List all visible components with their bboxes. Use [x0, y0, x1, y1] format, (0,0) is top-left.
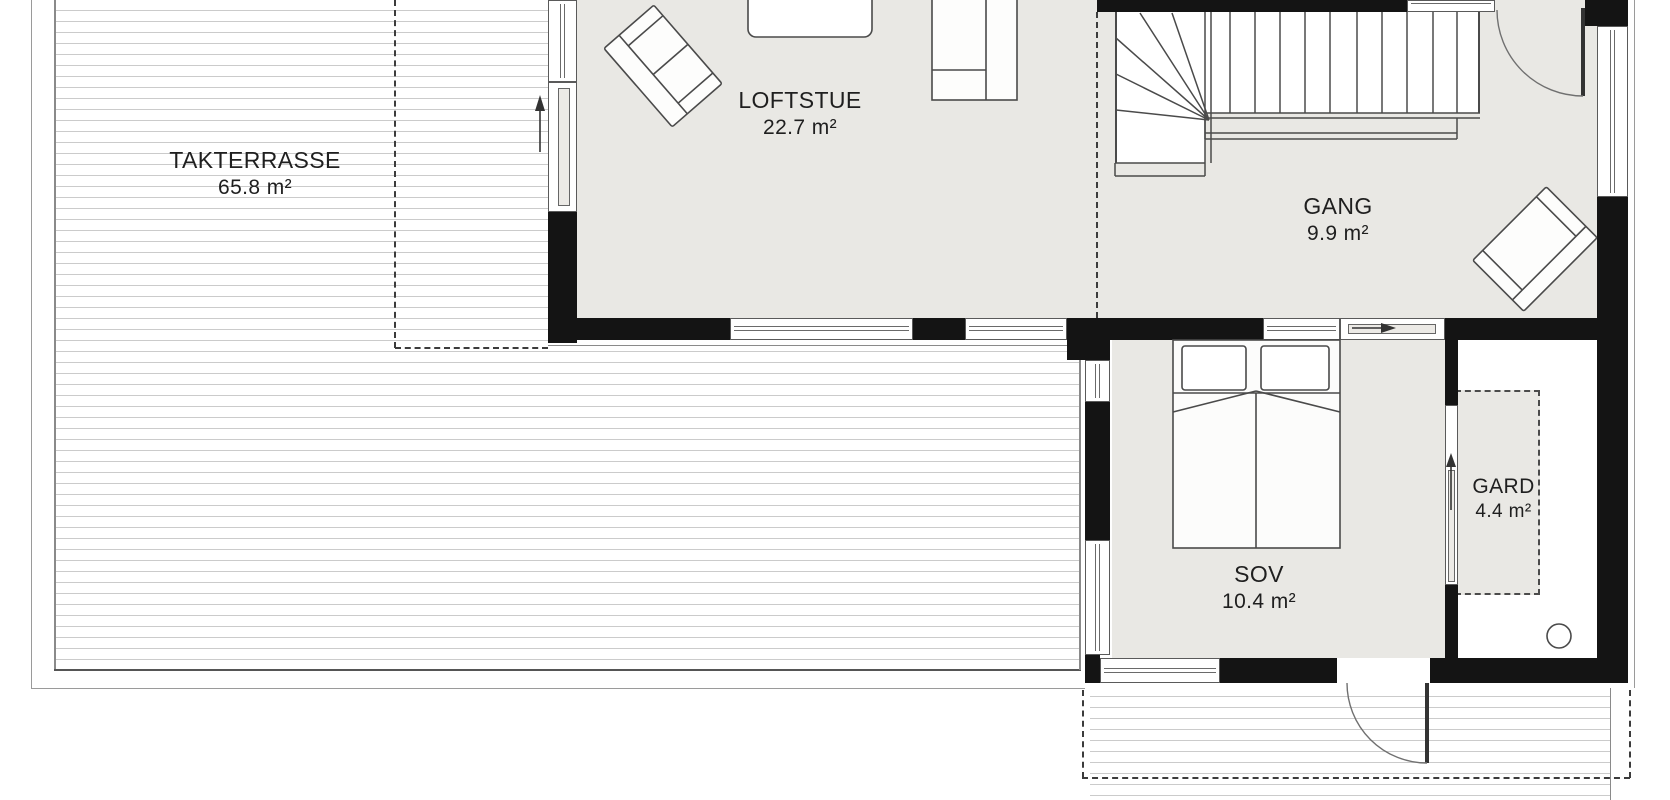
- window-sov-left-2: [1085, 540, 1110, 655]
- glass: [1411, 3, 1491, 4]
- room-area: 9.9 m²: [1238, 221, 1438, 247]
- wall-face-line: [548, 345, 1097, 346]
- room-label-gard: GARD 4.4 m²: [1446, 474, 1561, 524]
- wall-top-bar: [1097, 0, 1407, 12]
- wall-bottom-seg2: [913, 318, 965, 340]
- floor-plan: TAKTERRASSE 65.8 m² LOFTSTUE 22.7 m² GAN…: [0, 0, 1670, 800]
- wall-sov-top: [1110, 318, 1263, 340]
- room-label-sov: SOV 10.4 m²: [1159, 560, 1359, 615]
- window-sov-top: [1263, 318, 1340, 340]
- balcony-dash-right: [1629, 690, 1631, 778]
- glass: [1610, 30, 1615, 193]
- room-area: 10.4 m²: [1159, 589, 1359, 615]
- terrace-edge-left: [54, 0, 56, 670]
- glass: [1095, 544, 1100, 651]
- balcony-dash-bottom: [1082, 777, 1630, 779]
- wall-bottom-gard: [1430, 658, 1628, 683]
- window-loftstue-south-1: [730, 318, 913, 340]
- room-name: GANG: [1238, 192, 1438, 221]
- wall-sov-left-bottom: [1085, 655, 1100, 683]
- wall-bottom-seg1: [548, 318, 730, 340]
- wall-bottom-sov: [1220, 658, 1337, 683]
- room-label-gang: GANG 9.9 m²: [1238, 192, 1438, 247]
- outer-line-bottom: [31, 688, 1085, 689]
- wall-gard-left-bottom: [1445, 585, 1458, 683]
- room-name: SOV: [1159, 560, 1359, 589]
- terrace-edge-right: [1079, 347, 1081, 670]
- slider-sov-top: [1340, 318, 1445, 340]
- wall-gang-south-right: [1445, 318, 1597, 340]
- outer-line-left: [31, 0, 32, 688]
- glass: [560, 4, 565, 78]
- wall-corner-sov: [1067, 318, 1110, 360]
- window-right-gang: [1597, 26, 1628, 197]
- wall-gard-left-top: [1445, 340, 1458, 405]
- wall-top-right-corner: [1585, 0, 1628, 26]
- slider-panel: [558, 88, 570, 206]
- stair-winders: [1115, 12, 1205, 163]
- room-name: GARD: [1446, 474, 1561, 500]
- outer-line-right: [1634, 0, 1635, 688]
- window-loftstue-south-2: [965, 318, 1067, 340]
- slider-panel: [1348, 324, 1436, 334]
- glass: [1267, 326, 1336, 331]
- window-loftstue-left: [548, 0, 577, 82]
- slider-loftstue-left: [548, 82, 577, 212]
- window-sov-left-1: [1085, 360, 1110, 402]
- glass: [1095, 364, 1100, 398]
- balcony-edge-right: [1610, 688, 1611, 800]
- terrace-dash-horizontal: [395, 347, 548, 349]
- window-sov-bottom: [1100, 658, 1220, 683]
- window-top-gang: [1407, 0, 1495, 12]
- loftstue-gang-divider: [1096, 12, 1098, 318]
- room-area: 4.4 m²: [1446, 500, 1561, 524]
- glass: [1104, 668, 1216, 673]
- glass: [969, 326, 1063, 331]
- stair-run: [1205, 12, 1480, 113]
- room-name: LOFTSTUE: [650, 86, 950, 115]
- terrace-edge-bottom: [54, 669, 1081, 671]
- room-area: 22.7 m²: [650, 115, 950, 141]
- room-name: TAKTERRASSE: [105, 146, 405, 175]
- balcony-dash-left: [1082, 690, 1084, 778]
- room-label-takterrasse: TAKTERRASSE 65.8 m²: [105, 146, 405, 201]
- wall-right-main: [1597, 197, 1628, 660]
- wall-sov-left-mid: [1085, 402, 1110, 540]
- lower-balcony-deck: [1090, 686, 1610, 800]
- glass: [734, 326, 909, 331]
- room-area: 65.8 m²: [105, 175, 405, 201]
- room-label-loftstue: LOFTSTUE 22.7 m²: [650, 86, 950, 141]
